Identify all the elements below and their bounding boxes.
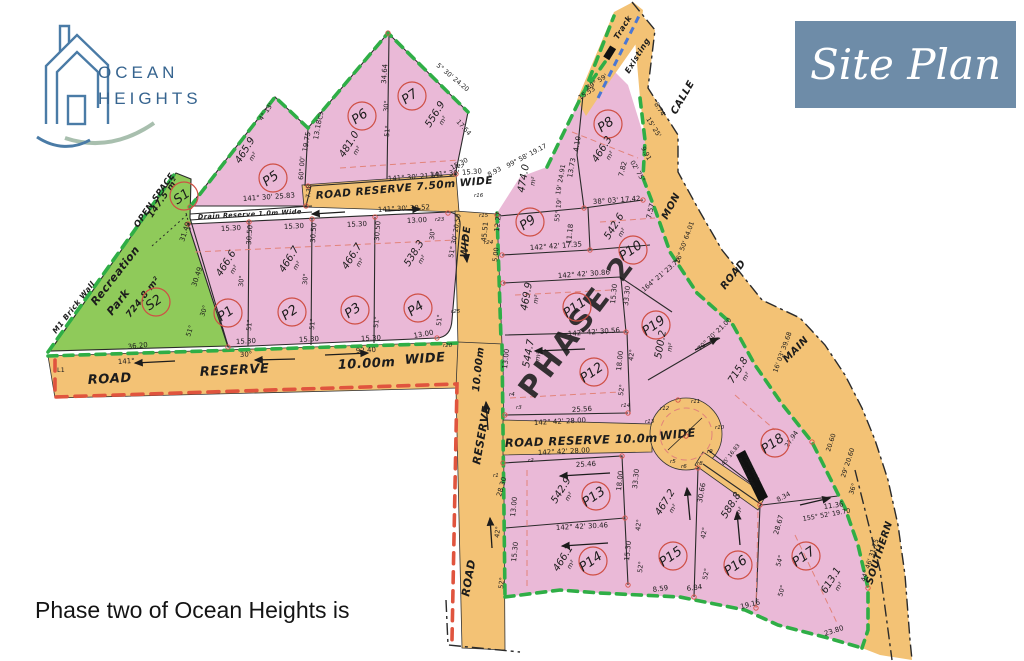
direction-arrow (312, 212, 345, 214)
radius-marker: r16 (474, 193, 484, 199)
dimension-label: 15.30 (284, 222, 304, 231)
dimension-label: 51° (435, 314, 444, 326)
road-label: CALLE (669, 79, 697, 117)
dimension-label: 42° (627, 349, 636, 361)
dimension-label: 7.38 (305, 184, 313, 198)
dimension-label: 30° (382, 100, 391, 112)
dimension-label: 25.46 (576, 460, 597, 469)
dimension-label: 30.50 (309, 223, 318, 244)
dimension-label: L1 (57, 366, 65, 374)
road-label: WIDE (404, 350, 446, 368)
radius-marker: r6 (681, 464, 687, 470)
dimension-label: 15.30 (361, 334, 381, 343)
dimension-label: 15.30 (221, 224, 241, 233)
site-plan-badge: Site Plan (795, 21, 1016, 108)
radius-marker: r23 (435, 217, 445, 223)
dimension-label: 51° (372, 316, 381, 328)
dimension-label: 25.56 (572, 405, 593, 414)
radius-marker: r11 (691, 399, 700, 405)
dimension-label: 92.40 (356, 346, 376, 355)
site-plan-page: RIGHT OF WAY 5.00M WIDE PHASE 2 36.20141… (0, 0, 1024, 661)
dimension-label: 141° 30' 30.52 (378, 203, 431, 214)
dimension-label: 52° (497, 577, 506, 589)
radius-marker: r17 (455, 164, 465, 170)
dimension-label: 30.50 (373, 221, 382, 242)
radius-marker: r12 (660, 406, 670, 412)
caption: Phase two of Ocean Heights is made up of… (35, 533, 350, 661)
dimension-label: 15.30 (347, 220, 367, 229)
radius-marker: r2 (528, 458, 534, 464)
dimension-label: 5.00 (491, 247, 500, 262)
dimension-label: 30° (428, 228, 437, 240)
dimension-label: 141° (118, 357, 135, 366)
dimension-label: 30° (301, 273, 310, 285)
dimension-label: 30.50 (245, 225, 254, 246)
dimension-label: 36.20 (127, 341, 148, 351)
radius-marker: r1 (493, 473, 499, 479)
dimension-label: 51° (308, 318, 317, 330)
dimension-label: C3 (317, 111, 325, 120)
logo-name-line1: OCEAN (98, 60, 202, 86)
dimension-label: 42° (634, 519, 643, 531)
radius-marker: r20 (443, 343, 453, 349)
road-label: ROAD (87, 371, 132, 388)
radius-marker: r25 (451, 309, 461, 315)
dimension-label: 13.00 (407, 216, 427, 225)
logo-wave-green-icon (65, 123, 154, 143)
dimension-label: 51° (245, 319, 254, 331)
radius-marker: r10 (715, 425, 725, 431)
radius-marker: r8 (697, 461, 703, 467)
dimension-label: 15.30 (299, 335, 319, 344)
dimension-label: 52° (636, 561, 645, 573)
dimension-label: 52° (617, 384, 626, 396)
dimension-label: 42° (493, 526, 502, 538)
dimension-label: 60° 00' (297, 156, 307, 180)
radius-marker: r15 (479, 213, 489, 219)
radius-marker: r5 (670, 459, 676, 465)
dimension-label: 34.64 (380, 63, 389, 84)
dimension-label: 15.30 (236, 337, 256, 346)
radius-marker: r13 (645, 419, 655, 425)
radius-marker: r3 (516, 405, 522, 411)
dimension-label: 30° (237, 275, 246, 287)
dimension-label: 51° (383, 125, 392, 137)
dimension-label: 30° (240, 350, 253, 359)
caption-line1: Phase two of Ocean Heights is (35, 595, 350, 626)
radius-marker: r9 (707, 449, 713, 455)
logo-name-line2: HEIGHTS (98, 86, 202, 112)
road-label: 10.00m (337, 355, 395, 373)
radius-marker: r14 (621, 403, 631, 409)
page-title: Site Plan (810, 40, 1001, 89)
radius-marker: r24 (484, 240, 494, 246)
radius-marker: r4 (509, 392, 515, 398)
ocean-heights-logo: OCEAN HEIGHTS (10, 8, 230, 148)
